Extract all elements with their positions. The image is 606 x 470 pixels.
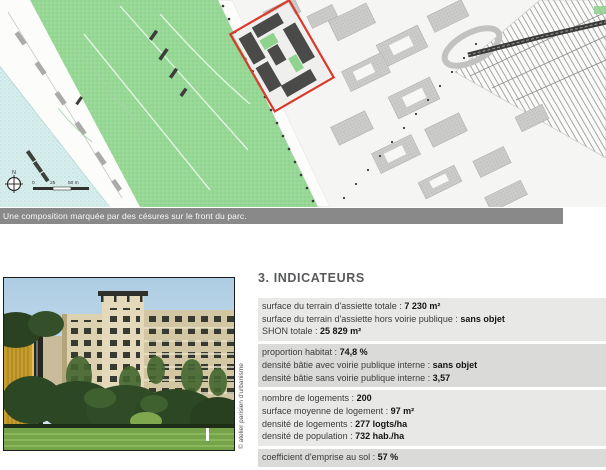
site-plan-svg: N 0 25 50 m xyxy=(0,0,606,207)
indicator-row: SHON totale : 25 829 m² xyxy=(262,325,602,338)
scale-tick-50: 50 m xyxy=(68,180,79,186)
north-label: N xyxy=(12,170,16,176)
indicator-row: surface du terrain d'assiette hors voiri… xyxy=(262,313,602,326)
building-photo xyxy=(3,277,235,451)
map-caption-text: Une composition marquée par des césures … xyxy=(3,211,247,221)
indicator-row: densité bâtie sans voirie publique inter… xyxy=(262,372,602,385)
indicator-row: proportion habitat : 74,8 % xyxy=(262,346,602,359)
indicator-row: densité de population : 732 hab./ha xyxy=(262,430,602,443)
indicator-row: coefficient d'emprise au sol : 57 % xyxy=(262,451,602,464)
lawn xyxy=(4,424,234,450)
photo-credit: © atelier parisien d'urbanisme xyxy=(238,277,248,449)
map-caption-bar: Une composition marquée par des césures … xyxy=(0,208,563,224)
indicators-section: 3. INDICATEURS surface du terrain d'assi… xyxy=(258,271,606,470)
scale-tick-0: 0 xyxy=(32,180,35,186)
indicator-row: densité bâtie avec voirie publique inter… xyxy=(262,359,602,372)
photo-scale-mark xyxy=(206,428,209,441)
indicator-row: densité de logements : 277 logts/ha xyxy=(262,418,602,431)
indicator-group-surface: surface du terrain d'assiette totale : 7… xyxy=(258,298,606,341)
site-plan-map: N 0 25 50 m xyxy=(0,0,606,207)
tower-roof xyxy=(98,291,148,296)
indicator-row: surface du terrain d'assiette totale : 7… xyxy=(262,300,602,313)
scale-tick-25: 25 xyxy=(50,180,56,186)
indicators-title: 3. INDICATEURS xyxy=(258,271,606,285)
indicator-row: nombre de logements : 200 xyxy=(262,392,602,405)
indicator-row: surface moyenne de logement : 97 m² xyxy=(262,405,602,418)
building-photo-svg xyxy=(4,278,234,450)
indicator-group-logements: nombre de logements : 200 surface moyenn… xyxy=(258,390,606,446)
indicator-group-densite: proportion habitat : 74,8 % densité bâti… xyxy=(258,344,606,387)
